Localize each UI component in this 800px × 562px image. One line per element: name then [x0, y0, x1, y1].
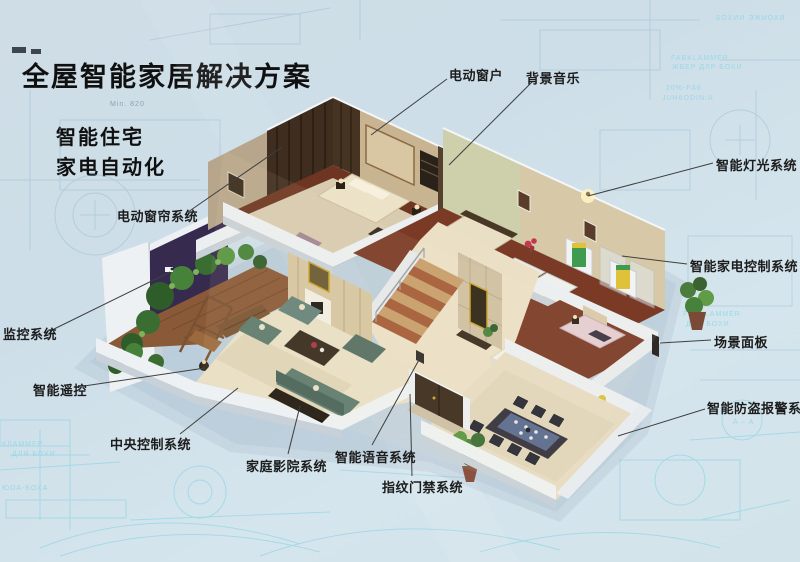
callout-central-control: 中央控制系统	[110, 434, 191, 453]
callout-appliance-control: 智能家电控制系统	[690, 256, 798, 275]
callout-electric-window: 电动窗户	[449, 65, 503, 84]
callout-electric-curtain: 电动窗帘系统	[117, 206, 198, 225]
leader-monitoring	[50, 272, 170, 331]
callout-background-music: 背景音乐	[526, 68, 580, 87]
leader-burglar-alarm	[618, 409, 705, 436]
callout-monitoring: 监控系统	[3, 324, 57, 343]
callout-burglar-alarm: 智能防盗报警系统	[707, 398, 800, 417]
poster: Min. 820 БОХИИ ЭЖИОХИ FABKLAMMER ЖБЕР ДЛ…	[0, 0, 800, 562]
leader-home-theater	[288, 406, 300, 454]
leader-background-music	[449, 82, 532, 165]
leader-appliance-control	[622, 256, 687, 264]
leader-smart-remote	[84, 368, 205, 386]
leader-electric-curtain	[188, 147, 282, 212]
leader-smart-voice	[372, 358, 420, 445]
callout-smart-lighting: 智能灯光系统	[716, 155, 797, 174]
callout-fingerprint-access: 指纹门禁系统	[382, 477, 463, 496]
callout-smart-voice: 智能语音系统	[335, 447, 416, 466]
callout-smart-remote: 智能遥控	[33, 380, 87, 399]
leader-smart-lighting	[588, 163, 713, 196]
callout-scene-panel: 场景面板	[714, 332, 768, 351]
callout-home-theater: 家庭影院系统	[246, 456, 327, 475]
leader-electric-window	[371, 79, 447, 135]
leader-scene-panel	[660, 340, 711, 343]
leader-central-control	[180, 388, 238, 434]
